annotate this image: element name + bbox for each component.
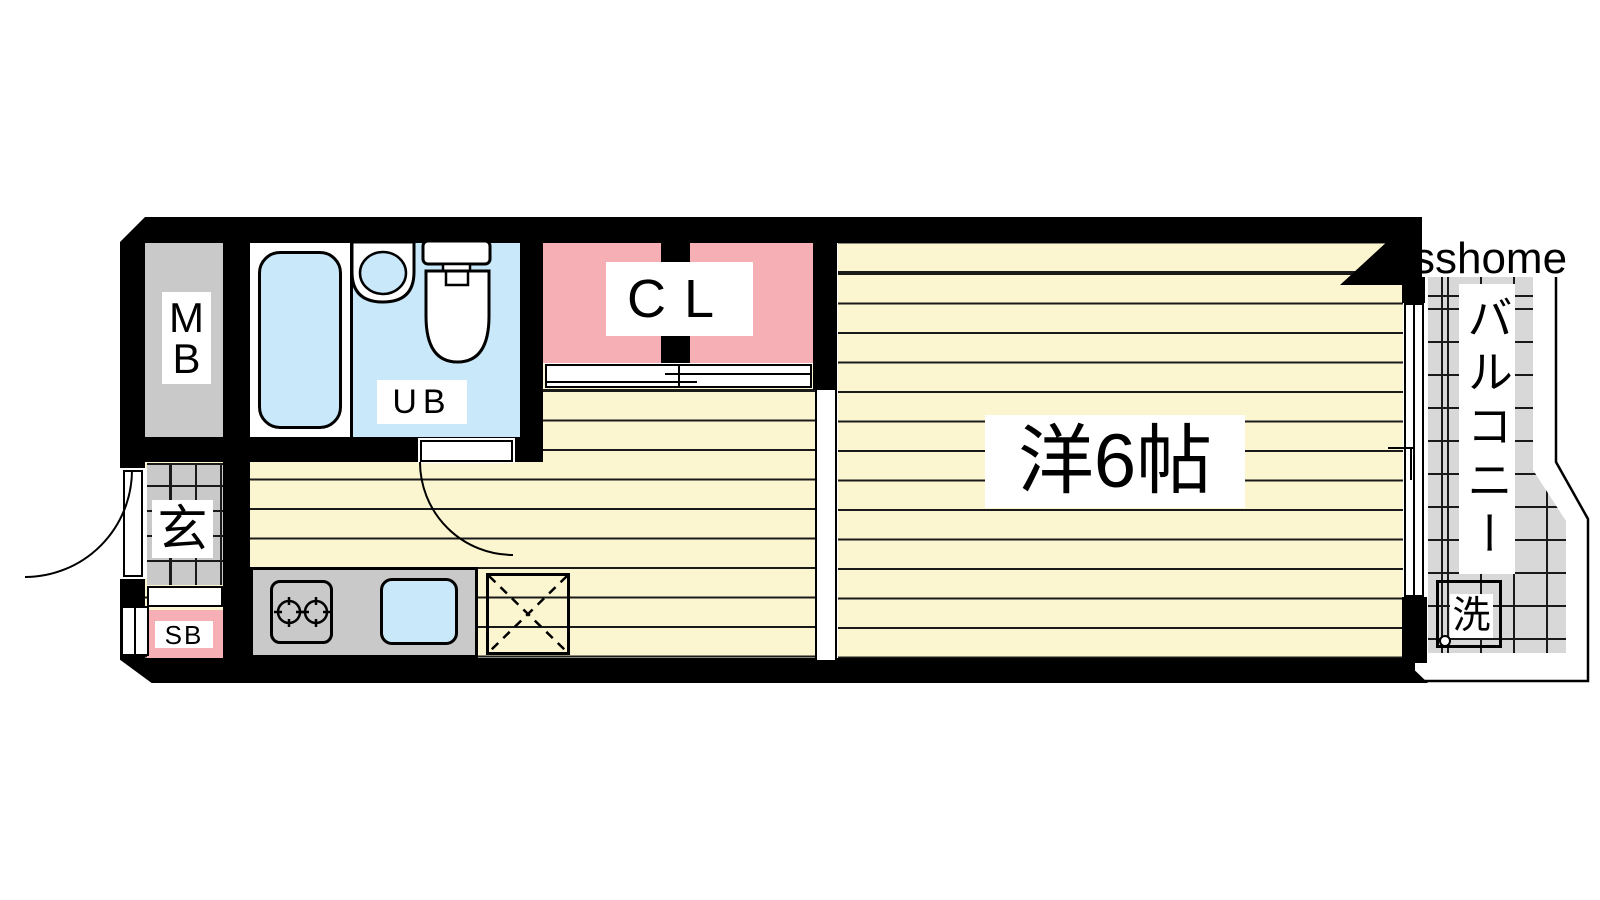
bath-door-swing-arc [420,462,513,555]
balcony-label: バルコニー [1459,284,1515,574]
watermark: sshome [1422,217,1558,277]
pillar-diagonal [1340,228,1402,285]
bevel-bottom-right [1403,659,1428,683]
bevel-top-left [119,216,146,243]
entrance-text: 玄 [158,504,208,554]
closet-text: CL [627,272,732,326]
detail-layer [0,0,1600,900]
shoe-box-label: SB [155,621,213,648]
unit-bath-label: UB [377,380,467,424]
shoe-box-text: SB [165,622,204,648]
main-room-label: 洋6帖 [985,415,1245,508]
toilet-tank [423,241,490,264]
main-room-text: 洋6帖 [1018,424,1212,500]
window-center-tick [1388,448,1413,480]
meter-box-label: MB [162,292,211,384]
balcony-text: バルコニー [1464,294,1510,564]
entrance-label: 玄 [152,500,213,558]
unit-bath-text: UB [392,385,451,419]
closet-label: CL [606,262,753,336]
stove-burners [274,597,331,627]
closet-wall-chamfer [520,437,543,462]
washer-drain [1440,636,1450,646]
bevel-bottom-left [119,659,153,684]
refrigerator-x-mark [489,576,567,652]
entrance-door-swing-arc [25,470,132,577]
watermark-text: sshome [1413,240,1567,277]
washer-text: 洗 [1452,597,1490,635]
washer-label: 洗 [1450,594,1493,638]
meter-box-text: MB [162,297,211,379]
floorplan: MB UB CL 玄 SB 洋6帖 バルコニー 洗 sshome [0,0,1600,900]
wash-basin-bowl [360,252,406,294]
